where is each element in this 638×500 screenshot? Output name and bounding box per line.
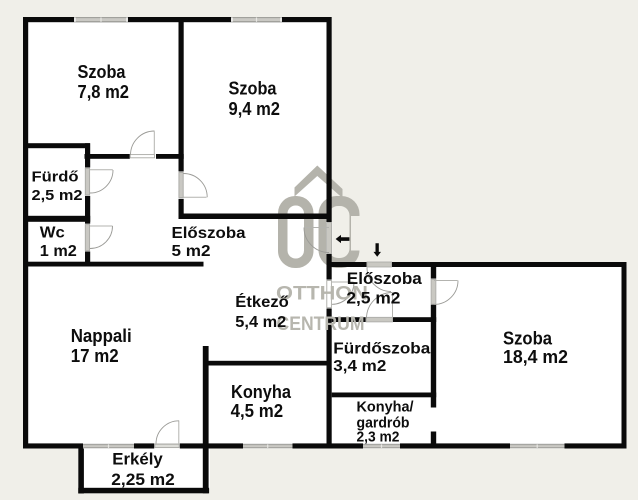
svg-text:7,8 m2: 7,8 m2 — [78, 82, 130, 102]
svg-text:2,25 m2: 2,25 m2 — [111, 471, 175, 489]
svg-text:Fürdő: Fürdő — [32, 168, 79, 185]
svg-text:Előszoba: Előszoba — [172, 225, 246, 242]
svg-text:Szoba: Szoba — [229, 79, 278, 99]
svg-text:3,4 m2: 3,4 m2 — [333, 358, 386, 375]
svg-text:5,4 m2: 5,4 m2 — [235, 314, 286, 331]
svg-text:Szoba: Szoba — [78, 62, 127, 82]
svg-text:Wc: Wc — [40, 224, 65, 241]
svg-text:Fürdőszoba: Fürdőszoba — [333, 340, 430, 357]
svg-text:9,4 m2: 9,4 m2 — [229, 99, 281, 119]
svg-text:2,5 m2: 2,5 m2 — [32, 187, 83, 204]
svg-text:Szoba: Szoba — [503, 328, 553, 348]
svg-text:Konyha/: Konyha/ — [357, 399, 414, 415]
svg-text:2,5 m2: 2,5 m2 — [346, 290, 400, 308]
svg-text:Konyha: Konyha — [231, 382, 292, 402]
svg-text:18,4 m2: 18,4 m2 — [503, 347, 568, 367]
svg-text:2,3 m2: 2,3 m2 — [357, 429, 400, 445]
svg-text:Nappali: Nappali — [71, 326, 132, 346]
svg-text:17 m2: 17 m2 — [71, 346, 119, 366]
svg-text:Erkély: Erkély — [112, 450, 163, 468]
svg-text:1 m2: 1 m2 — [40, 243, 77, 260]
svg-text:Étkező: Étkező — [235, 294, 288, 311]
svg-text:CENTRUM: CENTRUM — [277, 313, 365, 335]
svg-text:4,5 m2: 4,5 m2 — [231, 401, 284, 421]
svg-text:5 m2: 5 m2 — [172, 243, 211, 260]
svg-text:Előszoba: Előszoba — [347, 270, 423, 288]
